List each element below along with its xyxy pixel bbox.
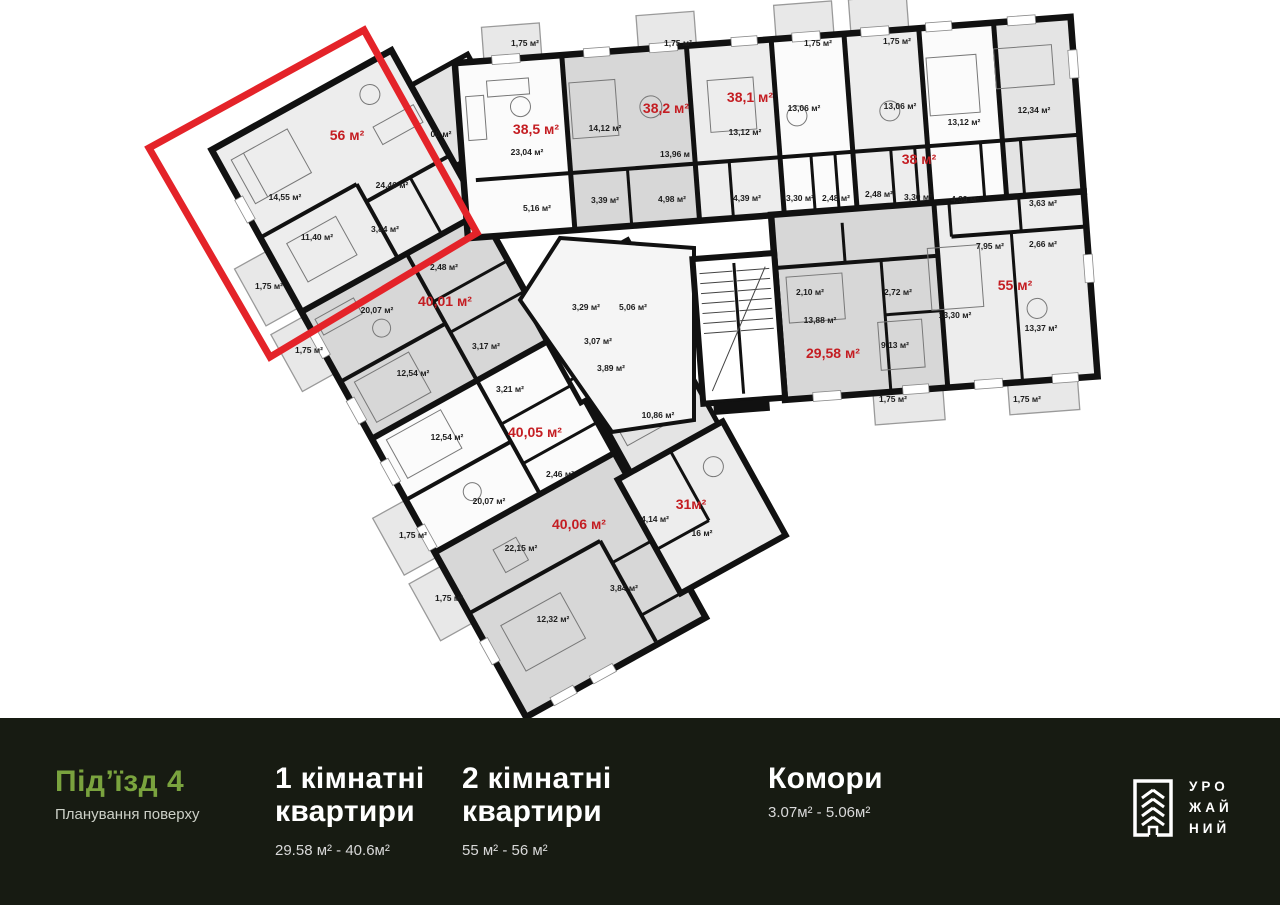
logo-building-icon — [1130, 778, 1176, 838]
entrance-subtitle: Планування поверху — [55, 806, 199, 823]
legend-storage: Комори 3.07м² - 5.06м² — [768, 762, 883, 821]
footer-bar: Під’їзд 4 Планування поверху 1 кімнатні … — [0, 718, 1280, 905]
floor-plan: 14,55 м²24,46 м²11,40 м²3,84 м²1,75 м²1,… — [0, 0, 1280, 718]
entrance-title: Під’їзд 4 — [55, 765, 199, 799]
logo-line: ЖАЙ — [1189, 797, 1233, 818]
legend-1-room: 1 кімнатні квартири 29.58 м² - 40.6м² — [275, 762, 425, 859]
apartment-region-38-5[interactable] — [458, 58, 574, 234]
floorplan-page: 14,55 м²24,46 м²11,40 м²3,84 м²1,75 м²1,… — [0, 0, 1280, 905]
legend-1-room-line1: 1 кімнатні — [275, 762, 425, 795]
stairwell — [692, 253, 785, 404]
legend-1-room-line2: квартири — [275, 795, 415, 828]
legend-2-room: 2 кімнатні квартири 55 м² - 56 м² — [462, 762, 612, 859]
legend-2-room-range: 55 м² - 56 м² — [462, 842, 612, 859]
legend-storage-range: 3.07м² - 5.06м² — [768, 804, 883, 821]
logo-wordmark: УРО ЖАЙ НИЙ — [1189, 776, 1233, 839]
legend-1-room-range: 29.58 м² - 40.6м² — [275, 842, 425, 859]
logo-line: НИЙ — [1189, 818, 1233, 839]
logo-line: УРО — [1189, 776, 1233, 797]
legend-2-room-line2: квартири — [462, 795, 602, 828]
apartment-region-38-1[interactable] — [687, 43, 784, 218]
apartment-region-29-58[interactable] — [775, 206, 948, 396]
legend-2-room-line1: 2 кімнатні — [462, 762, 612, 795]
developer-logo: УРО ЖАЙ НИЙ — [1130, 776, 1233, 839]
legend-storage-title: Комори — [768, 762, 883, 795]
entrance-block: Під’їзд 4 Планування поверху — [55, 765, 199, 823]
